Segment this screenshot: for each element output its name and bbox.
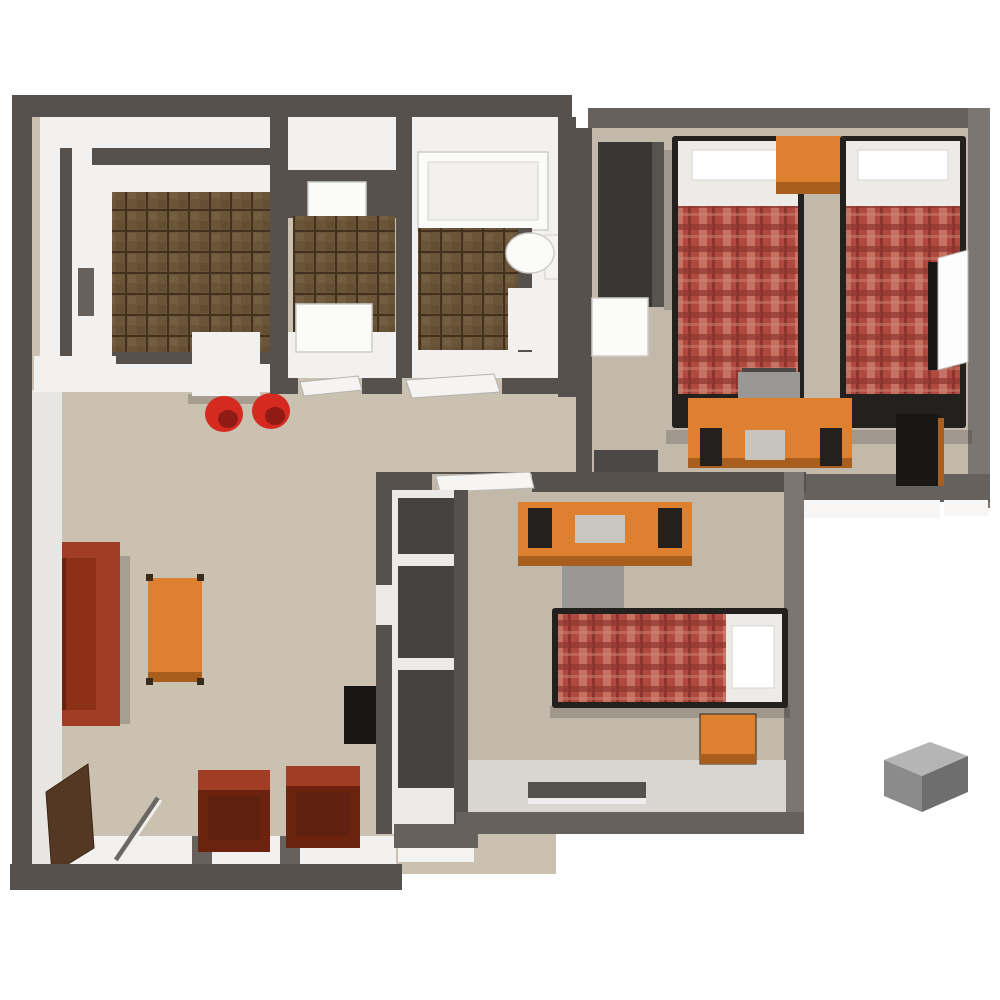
armchair-seat [296, 792, 350, 836]
closet-shelf [398, 566, 456, 658]
table-leg [146, 678, 153, 685]
floor-plan-3d [0, 0, 1000, 1000]
wardrobe-side [652, 142, 664, 307]
kitchen [34, 117, 290, 432]
bathroom-right-wall [558, 117, 576, 397]
bedroom-center-bottom-wall [456, 812, 804, 834]
south-wall [10, 864, 402, 890]
coffee-table-edge [148, 672, 202, 682]
kitchen-appliance-dark [78, 268, 94, 316]
closet-west-wall [376, 472, 392, 834]
armchair-seat [208, 796, 260, 840]
bedroom-door-leaf [436, 472, 534, 492]
kitchen-island [192, 332, 260, 396]
closet-shelf [398, 670, 456, 788]
table-leg [197, 678, 204, 685]
dryer [296, 304, 372, 352]
bedroom-center [376, 472, 806, 834]
closet-wall-niche [376, 585, 392, 625]
wall-tv [344, 686, 376, 744]
twin-bed-plaid-blanket [558, 614, 726, 702]
bathroom [412, 117, 576, 397]
desk-papers [745, 430, 785, 460]
sofa-armrest [62, 710, 120, 726]
pillow [692, 150, 784, 180]
sofa-back [66, 548, 96, 718]
floor-plan-stage [0, 0, 1000, 1000]
pillow [858, 150, 948, 180]
entry-sill [398, 848, 474, 862]
closet-east-wall [454, 490, 468, 834]
dresser-edge [938, 418, 944, 486]
sofa-armrest [62, 542, 120, 558]
toilet [506, 233, 554, 273]
nightstand-front [776, 182, 850, 194]
table-leg [146, 574, 153, 581]
coffee-table [148, 578, 202, 682]
open-door [938, 250, 968, 370]
bedroom-right-top-wall [588, 108, 990, 128]
nightstand [776, 136, 850, 190]
laundry-top-strip [288, 117, 400, 177]
window-sill-corner [944, 500, 988, 516]
desk-papers [575, 515, 625, 543]
window-sill-light [528, 798, 646, 804]
mini-fridge [592, 298, 648, 356]
kitchen-cabinet-edge [60, 148, 72, 363]
desk-drawer [820, 428, 842, 466]
desk-drawer [700, 428, 722, 466]
bar-stool-shade [265, 407, 285, 425]
twin-bed-plaid-blanket [678, 206, 798, 394]
window-sill [528, 782, 646, 798]
sofa-seat [96, 556, 120, 712]
desk-front [518, 556, 692, 566]
pillow [732, 626, 774, 688]
bar-stool-shade [218, 410, 238, 428]
desk-drawer [528, 508, 552, 548]
sofa-shadow [120, 556, 130, 724]
vanity [508, 288, 554, 350]
nightstand-front [700, 754, 756, 764]
laundry-left-wall [270, 117, 288, 392]
armchair-back [286, 766, 360, 786]
bathtub-basin [428, 162, 538, 220]
north-wall [12, 95, 572, 117]
kitchen-counter-low [34, 356, 116, 392]
table-leg [197, 574, 204, 581]
desk-drawer [658, 508, 682, 548]
bedroom-right-east-wall [968, 108, 990, 508]
west-wall [12, 95, 32, 890]
laundry-right-wall [396, 117, 412, 392]
kitchen-upper-cabinet [92, 148, 285, 165]
entry-wall [394, 824, 478, 848]
closet-shelf [398, 498, 456, 554]
bathroom-tile-floor [418, 228, 518, 350]
armchair-back [198, 770, 270, 790]
dresser [896, 414, 940, 486]
bedroom-right-west-wall [576, 128, 592, 490]
